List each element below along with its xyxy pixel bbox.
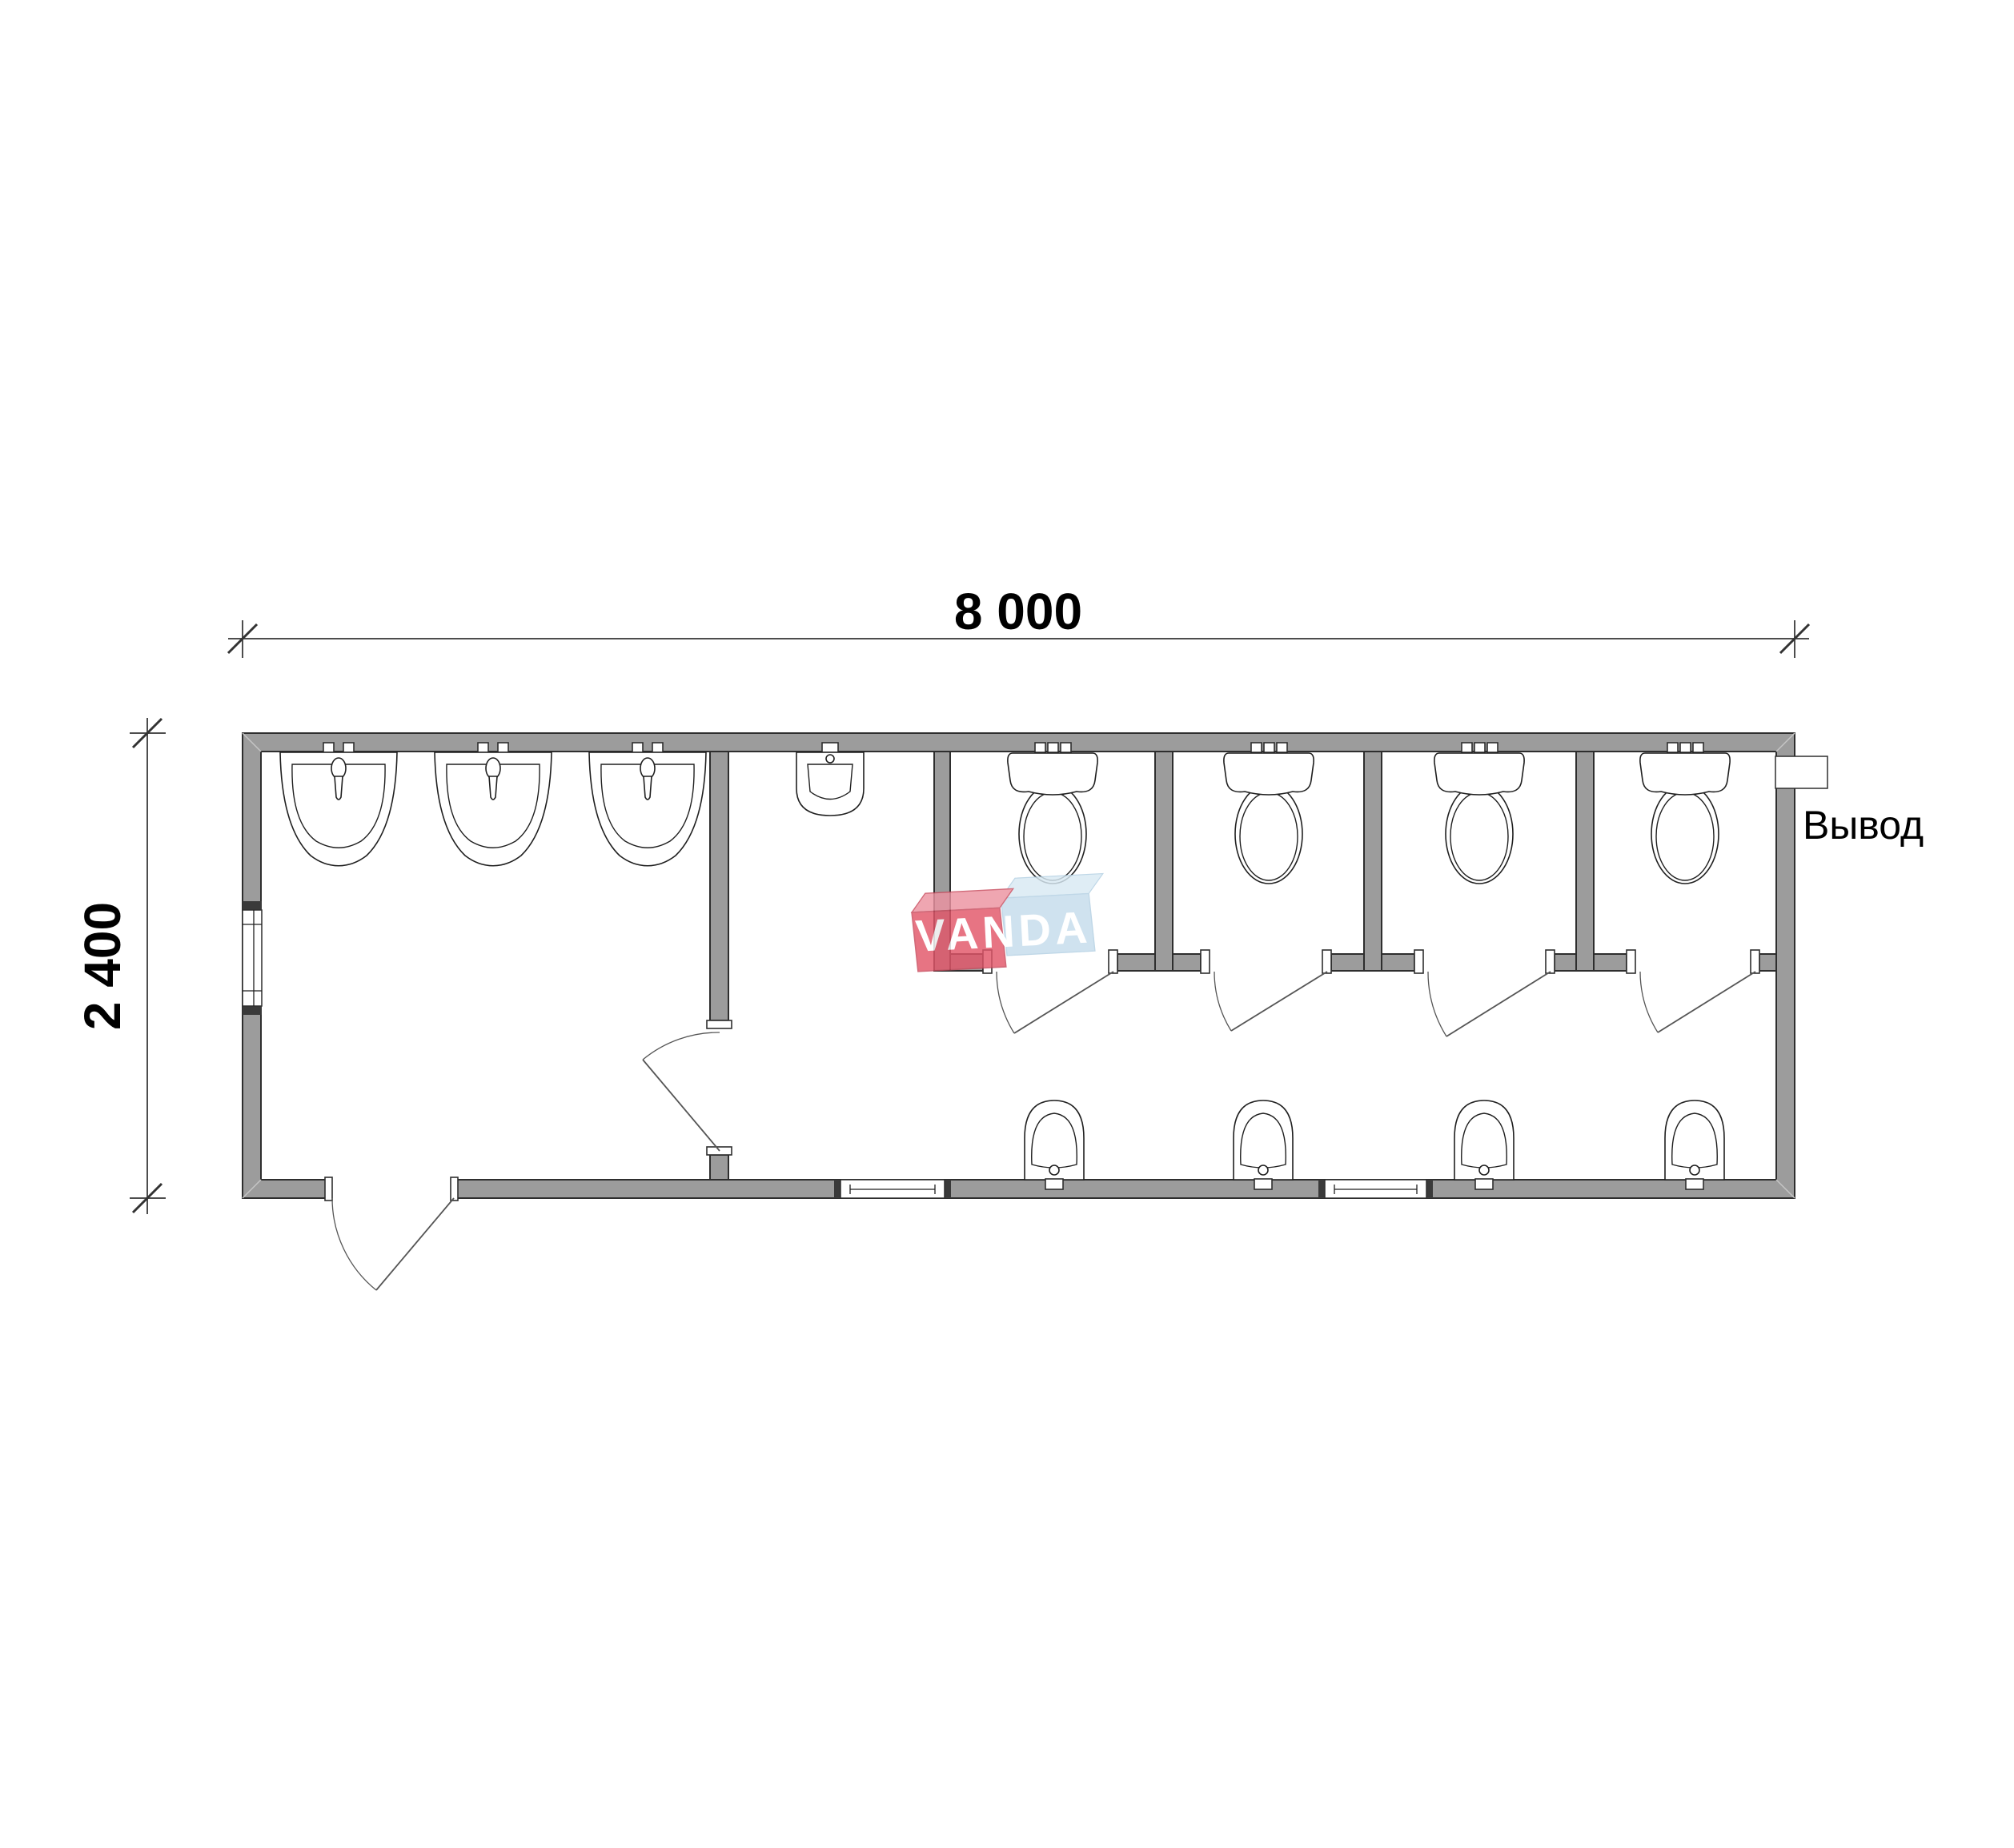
- urinal-top-wall: [796, 743, 864, 816]
- stall-door-2: [1201, 950, 1331, 1031]
- toilet-1: [1008, 743, 1097, 884]
- width-dimension: 8 000: [228, 583, 1809, 658]
- stall-door-2-leaf: [1231, 972, 1327, 1031]
- window-bottom-wall-2: [1318, 1180, 1433, 1198]
- washroom-partition-wall: [707, 752, 732, 1180]
- watermark-brand-text: VANDA: [914, 901, 1093, 960]
- entrance-door-swing-arc: [332, 1198, 376, 1290]
- corridor-door-swing-arc: [643, 1032, 720, 1060]
- toilet-2: [1224, 743, 1314, 884]
- stall-door-4: [1627, 950, 1759, 1032]
- window-bottom-wall-1: [834, 1180, 951, 1198]
- corridor-door: [643, 1032, 720, 1151]
- stall-door-1-leaf: [1014, 972, 1113, 1033]
- stall-door-4-swing-arc: [1640, 972, 1658, 1032]
- urinal-bottom-wall-4: [1665, 1100, 1724, 1189]
- urinal-bottom-wall-2: [1234, 1100, 1293, 1189]
- urinal-bottom-wall-3: [1454, 1100, 1514, 1189]
- corridor-door-leaf: [643, 1060, 720, 1151]
- stall-divider-3: [1364, 752, 1382, 971]
- washbasin-1: [280, 743, 397, 866]
- toilet-3: [1434, 743, 1524, 884]
- washbasin-3: [589, 743, 706, 866]
- entrance-door: [325, 1177, 458, 1290]
- stall-door-3: [1414, 950, 1555, 1036]
- height-dimension-label: 2 400: [74, 902, 131, 1030]
- toilet-4: [1640, 743, 1730, 884]
- stall-door-1-swing-arc: [997, 972, 1014, 1033]
- stall-door-3-swing-arc: [1428, 972, 1446, 1036]
- entrance-door-leaf: [376, 1198, 454, 1290]
- stall-divider-4: [1576, 752, 1594, 971]
- stall-divider-2: [1155, 752, 1173, 971]
- stall-door-4-leaf: [1658, 972, 1755, 1032]
- urinal-bottom-wall-1: [1025, 1100, 1084, 1189]
- window-left-wall: [243, 901, 262, 1015]
- floor-plan-canvas: 8 000 2 400: [0, 0, 2014, 1848]
- stall-door-2-swing-arc: [1214, 972, 1231, 1031]
- utility-outlet-label: Вывод: [1803, 803, 1924, 848]
- washbasin-2: [435, 743, 552, 866]
- utility-outlet-box: [1775, 756, 1827, 788]
- utility-outlet: Вывод: [1775, 756, 1924, 848]
- width-dimension-label: 8 000: [954, 583, 1082, 640]
- height-dimension: 2 400: [74, 718, 166, 1214]
- floor-plan-page: 8 000 2 400: [0, 0, 2014, 1848]
- stall-door-3-leaf: [1446, 972, 1551, 1036]
